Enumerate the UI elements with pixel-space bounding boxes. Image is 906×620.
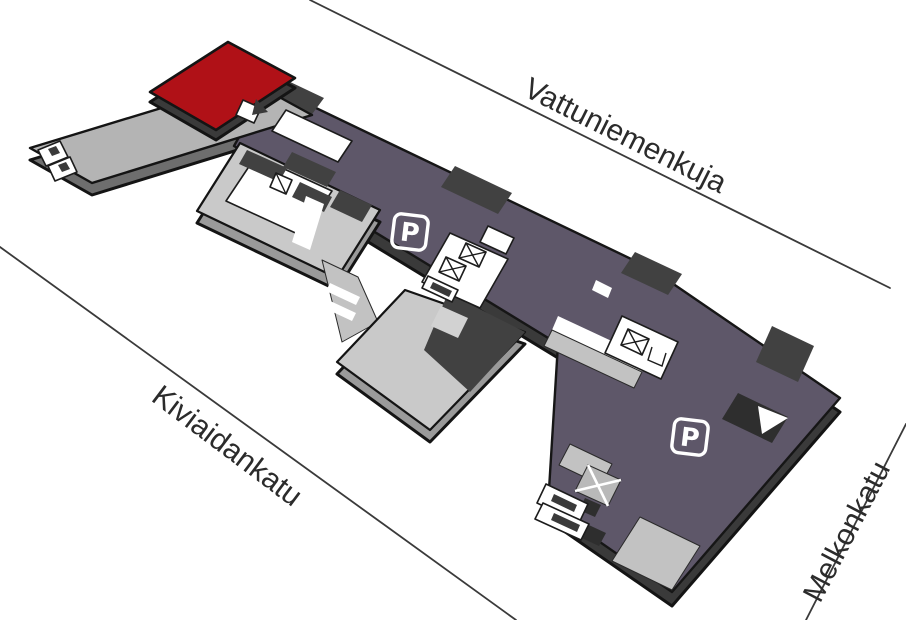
floor-plan-map: P P Vattuniemenkuja Kiviaidankatu Melkon… [0, 0, 906, 620]
street-label-melkonkatu: Melkonkatu [797, 456, 897, 607]
street-label-kiviaidankatu: Kiviaidankatu [146, 379, 308, 513]
parking-symbol-letter: P [679, 422, 702, 454]
floor-plan-canvas: P P Vattuniemenkuja Kiviaidankatu Melkon… [0, 0, 906, 620]
parking-symbol-letter: P [399, 217, 422, 249]
street-label-vattuniemenkuja: Vattuniemenkuja [519, 72, 732, 200]
